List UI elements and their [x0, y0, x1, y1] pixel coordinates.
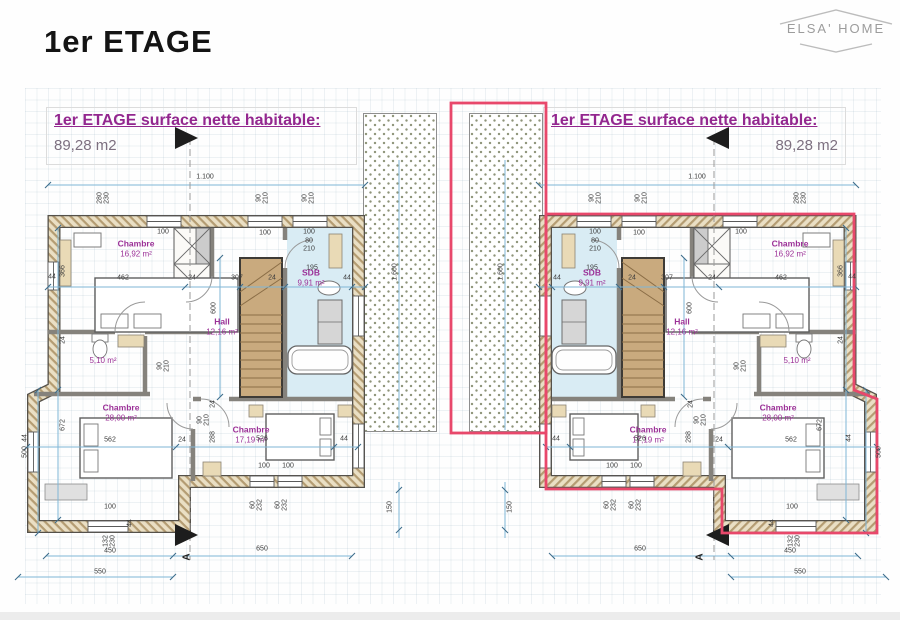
bottom-bar: [0, 612, 900, 620]
floor-plan-drawing: [0, 0, 900, 620]
floorplan-sheet: 1er ETAGE ELSA' HOME 1er ETAGE surface n…: [0, 0, 900, 620]
